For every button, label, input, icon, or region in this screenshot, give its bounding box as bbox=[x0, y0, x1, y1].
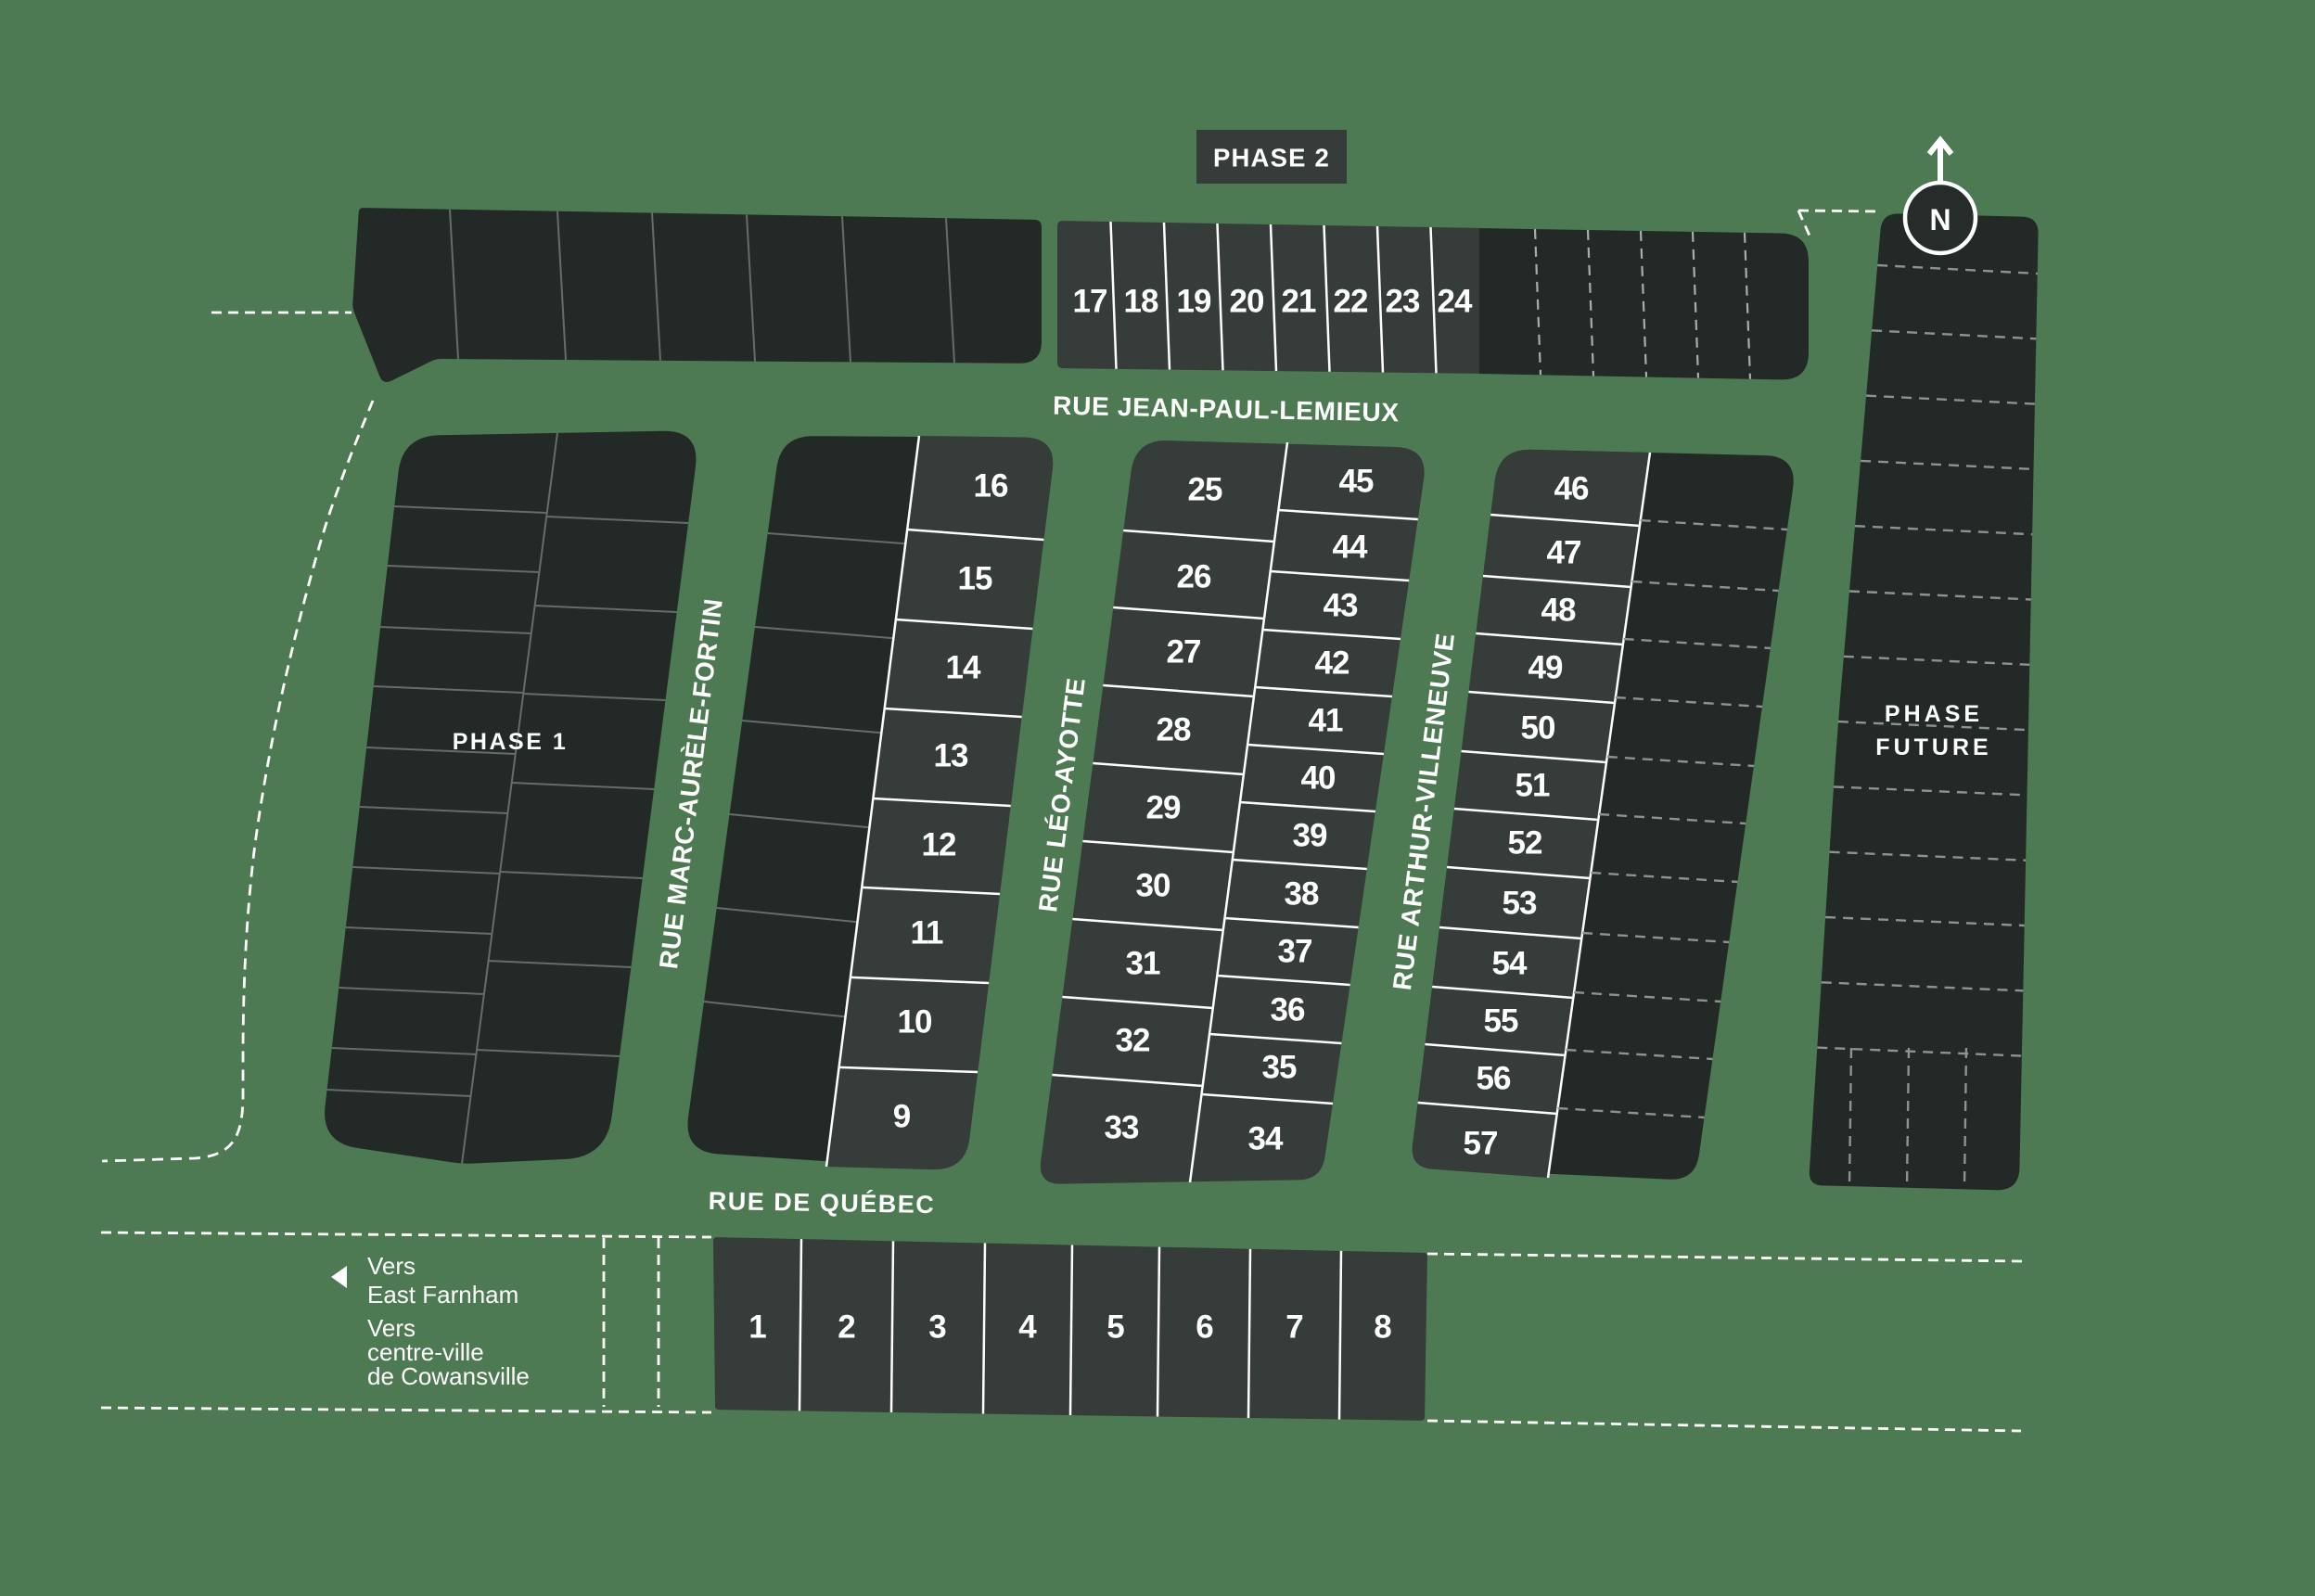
svg-text:54: 54 bbox=[1492, 946, 1528, 982]
svg-text:PHASE 1: PHASE 1 bbox=[453, 729, 568, 755]
svg-text:5: 5 bbox=[1106, 1309, 1124, 1346]
svg-text:32: 32 bbox=[1116, 1023, 1150, 1059]
svg-text:9: 9 bbox=[893, 1099, 911, 1135]
svg-text:East Farnham: East Farnham bbox=[367, 1281, 518, 1309]
svg-text:16: 16 bbox=[974, 468, 1008, 504]
svg-text:56: 56 bbox=[1477, 1061, 1511, 1097]
svg-text:PHASE: PHASE bbox=[1885, 701, 1983, 727]
svg-text:28: 28 bbox=[1157, 712, 1191, 748]
svg-text:Vers: Vers bbox=[367, 1252, 416, 1280]
svg-text:26: 26 bbox=[1177, 559, 1211, 595]
svg-text:36: 36 bbox=[1271, 992, 1305, 1028]
svg-text:57: 57 bbox=[1464, 1126, 1498, 1162]
svg-text:de Cowansville: de Cowansville bbox=[367, 1362, 530, 1390]
svg-text:47: 47 bbox=[1547, 535, 1581, 571]
svg-text:23: 23 bbox=[1386, 284, 1420, 320]
svg-text:12: 12 bbox=[922, 827, 956, 863]
svg-text:15: 15 bbox=[958, 561, 992, 597]
svg-text:41: 41 bbox=[1309, 703, 1343, 739]
svg-text:24: 24 bbox=[1438, 284, 1473, 320]
svg-text:49: 49 bbox=[1528, 650, 1563, 686]
svg-text:8: 8 bbox=[1374, 1309, 1391, 1346]
svg-text:27: 27 bbox=[1167, 634, 1201, 670]
svg-text:4: 4 bbox=[1018, 1309, 1037, 1346]
svg-text:48: 48 bbox=[1541, 593, 1576, 629]
svg-text:35: 35 bbox=[1262, 1050, 1297, 1086]
svg-text:39: 39 bbox=[1293, 818, 1327, 854]
svg-text:53: 53 bbox=[1503, 886, 1537, 922]
svg-text:30: 30 bbox=[1136, 868, 1170, 904]
svg-text:18: 18 bbox=[1124, 284, 1158, 320]
svg-text:11: 11 bbox=[911, 915, 944, 951]
svg-text:46: 46 bbox=[1554, 471, 1589, 507]
svg-text:3: 3 bbox=[928, 1309, 946, 1346]
svg-text:50: 50 bbox=[1521, 710, 1555, 747]
svg-text:7: 7 bbox=[1285, 1309, 1303, 1346]
svg-text:13: 13 bbox=[934, 738, 968, 774]
svg-text:19: 19 bbox=[1177, 284, 1211, 320]
svg-text:51: 51 bbox=[1516, 768, 1550, 804]
svg-text:14: 14 bbox=[946, 650, 981, 686]
svg-text:21: 21 bbox=[1282, 284, 1316, 320]
svg-text:33: 33 bbox=[1105, 1110, 1139, 1146]
svg-text:10: 10 bbox=[898, 1004, 932, 1041]
svg-text:52: 52 bbox=[1508, 825, 1542, 862]
svg-text:29: 29 bbox=[1146, 790, 1181, 826]
svg-text:43: 43 bbox=[1324, 588, 1358, 624]
svg-text:31: 31 bbox=[1126, 946, 1160, 982]
svg-text:RUE DE QUÉBEC: RUE DE QUÉBEC bbox=[708, 1186, 935, 1219]
svg-text:55: 55 bbox=[1484, 1003, 1518, 1040]
svg-text:34: 34 bbox=[1248, 1121, 1284, 1157]
svg-text:40: 40 bbox=[1301, 760, 1336, 797]
svg-text:6: 6 bbox=[1196, 1309, 1213, 1346]
svg-text:17: 17 bbox=[1073, 284, 1107, 320]
svg-text:20: 20 bbox=[1230, 284, 1264, 320]
svg-text:2: 2 bbox=[838, 1309, 855, 1346]
svg-text:N: N bbox=[1929, 203, 1950, 236]
svg-text:1: 1 bbox=[748, 1309, 766, 1346]
svg-text:PHASE 2: PHASE 2 bbox=[1213, 144, 1330, 172]
svg-text:FUTURE: FUTURE bbox=[1875, 734, 1991, 760]
svg-text:45: 45 bbox=[1339, 464, 1374, 500]
svg-text:44: 44 bbox=[1333, 530, 1368, 566]
svg-text:37: 37 bbox=[1278, 934, 1312, 970]
svg-text:22: 22 bbox=[1334, 284, 1368, 320]
svg-text:38: 38 bbox=[1285, 876, 1319, 913]
svg-text:42: 42 bbox=[1315, 645, 1349, 682]
svg-text:25: 25 bbox=[1188, 472, 1222, 508]
